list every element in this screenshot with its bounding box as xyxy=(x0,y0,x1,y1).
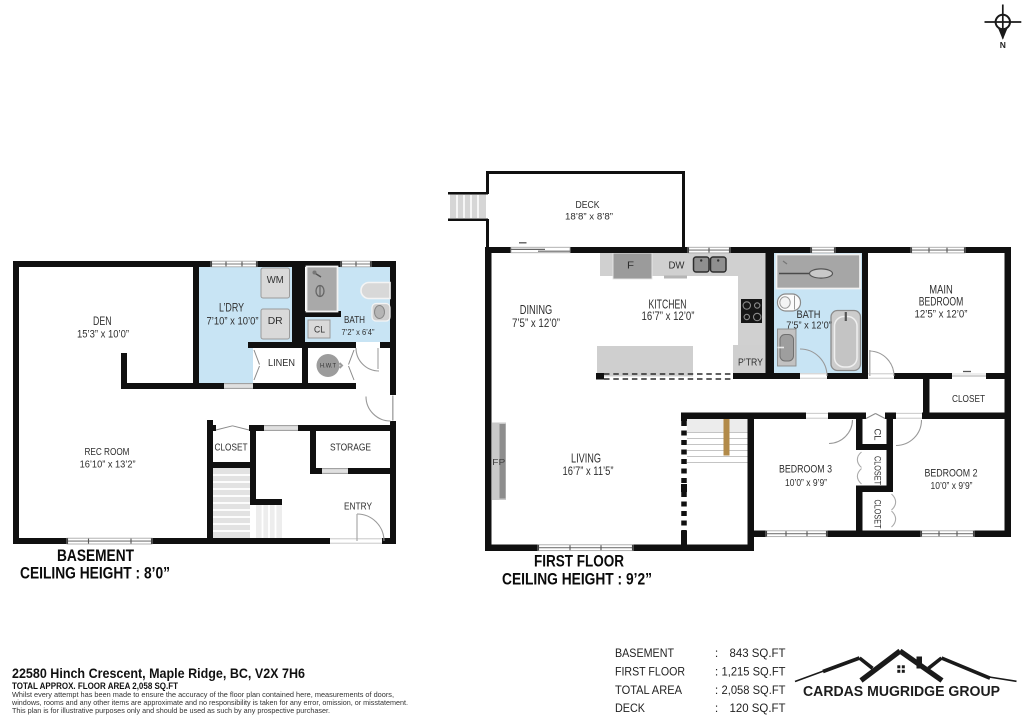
svg-text:120 SQ.FT: 120 SQ.FT xyxy=(730,701,787,715)
svg-text:BEDROOM: BEDROOM xyxy=(919,294,964,308)
svg-text:15’3” x 10’0”: 15’3” x 10’0” xyxy=(77,328,129,340)
svg-text:CEILING HEIGHT : 8’0”: CEILING HEIGHT : 8’0” xyxy=(20,565,170,583)
svg-text:CEILING HEIGHT : 9’2”: CEILING HEIGHT : 9’2” xyxy=(502,571,652,589)
svg-text:DEN: DEN xyxy=(93,316,112,328)
svg-text:2,058 SQ.FT: 2,058 SQ.FT xyxy=(722,683,787,697)
svg-text:LINEN: LINEN xyxy=(268,358,295,369)
svg-text:7’10” x 10’0”: 7’10” x 10’0” xyxy=(207,316,259,328)
svg-text:N: N xyxy=(1000,40,1006,50)
svg-text:18’8” x 8’8”: 18’8” x 8’8” xyxy=(565,212,613,222)
svg-text:12’5” x 12’0”: 12’5” x 12’0” xyxy=(915,309,968,321)
svg-text:DECK: DECK xyxy=(615,701,645,715)
svg-text:CLOSET: CLOSET xyxy=(215,442,248,453)
svg-text:KITCHEN: KITCHEN xyxy=(649,298,687,312)
svg-text:STORAGE: STORAGE xyxy=(330,441,371,453)
svg-text:P’TRY: P’TRY xyxy=(738,358,763,369)
svg-text:ENTRY: ENTRY xyxy=(344,500,372,512)
svg-text:10’0” x 9’9”: 10’0” x 9’9” xyxy=(931,480,973,492)
svg-text::: : xyxy=(715,665,718,679)
svg-text:This plan is for illustrative: This plan is for illustrative purposes o… xyxy=(12,706,330,715)
svg-text:CL: CL xyxy=(873,429,883,441)
svg-text:H.W.T: H.W.T xyxy=(320,363,336,369)
svg-text:BATH: BATH xyxy=(344,315,365,326)
svg-text:BEDROOM 2: BEDROOM 2 xyxy=(925,467,978,479)
svg-text::: : xyxy=(715,683,718,697)
svg-text:16’7” x 12’0”: 16’7” x 12’0” xyxy=(642,311,695,323)
svg-text:REC ROOM: REC ROOM xyxy=(85,446,130,458)
svg-text:1,215 SQ.FT: 1,215 SQ.FT xyxy=(722,665,787,679)
svg-text:10’0” x 9’9”: 10’0” x 9’9” xyxy=(785,477,827,489)
svg-text:22580 Hinch Crescent, Maple Ri: 22580 Hinch Crescent, Maple Ridge, BC, V… xyxy=(12,665,305,681)
svg-text:LIVING: LIVING xyxy=(571,452,601,466)
svg-text:FP: FP xyxy=(492,457,505,467)
svg-text:L’DRY: L’DRY xyxy=(219,303,244,315)
svg-text:DW: DW xyxy=(669,260,685,272)
svg-text:FIRST FLOOR: FIRST FLOOR xyxy=(615,665,685,679)
svg-text:FIRST FLOOR: FIRST FLOOR xyxy=(534,553,624,571)
svg-text:CLOSET: CLOSET xyxy=(952,394,985,405)
svg-text:843 SQ.FT: 843 SQ.FT xyxy=(730,646,787,660)
svg-text:DECK: DECK xyxy=(576,200,600,211)
svg-text:BEDROOM 3: BEDROOM 3 xyxy=(779,464,832,476)
svg-text:F: F xyxy=(627,261,634,272)
svg-text:CLOSET: CLOSET xyxy=(873,500,883,529)
svg-text:CL: CL xyxy=(314,324,325,335)
svg-text:7’5” x 12’0”: 7’5” x 12’0” xyxy=(786,320,832,332)
svg-text:16’10” x 13’2”: 16’10” x 13’2” xyxy=(80,459,136,470)
svg-text:CLOSET: CLOSET xyxy=(873,456,883,485)
svg-text:TOTAL AREA: TOTAL AREA xyxy=(615,683,682,697)
svg-text:7’5” x 12’0”: 7’5” x 12’0” xyxy=(512,318,560,330)
svg-text:DINING: DINING xyxy=(520,303,553,317)
svg-text::: : xyxy=(715,646,718,660)
svg-text:CARDAS MUGRIDGE GROUP: CARDAS MUGRIDGE GROUP xyxy=(803,684,1000,700)
svg-text:WM: WM xyxy=(267,274,284,286)
svg-text:BASEMENT: BASEMENT xyxy=(57,547,134,565)
svg-text:BASEMENT: BASEMENT xyxy=(615,646,675,660)
svg-text:16’7” x 11’5”: 16’7” x 11’5” xyxy=(563,466,614,478)
svg-text:7’2” x 6’4”: 7’2” x 6’4” xyxy=(342,327,375,337)
svg-text::: : xyxy=(715,701,718,715)
svg-text:DR: DR xyxy=(268,315,283,327)
